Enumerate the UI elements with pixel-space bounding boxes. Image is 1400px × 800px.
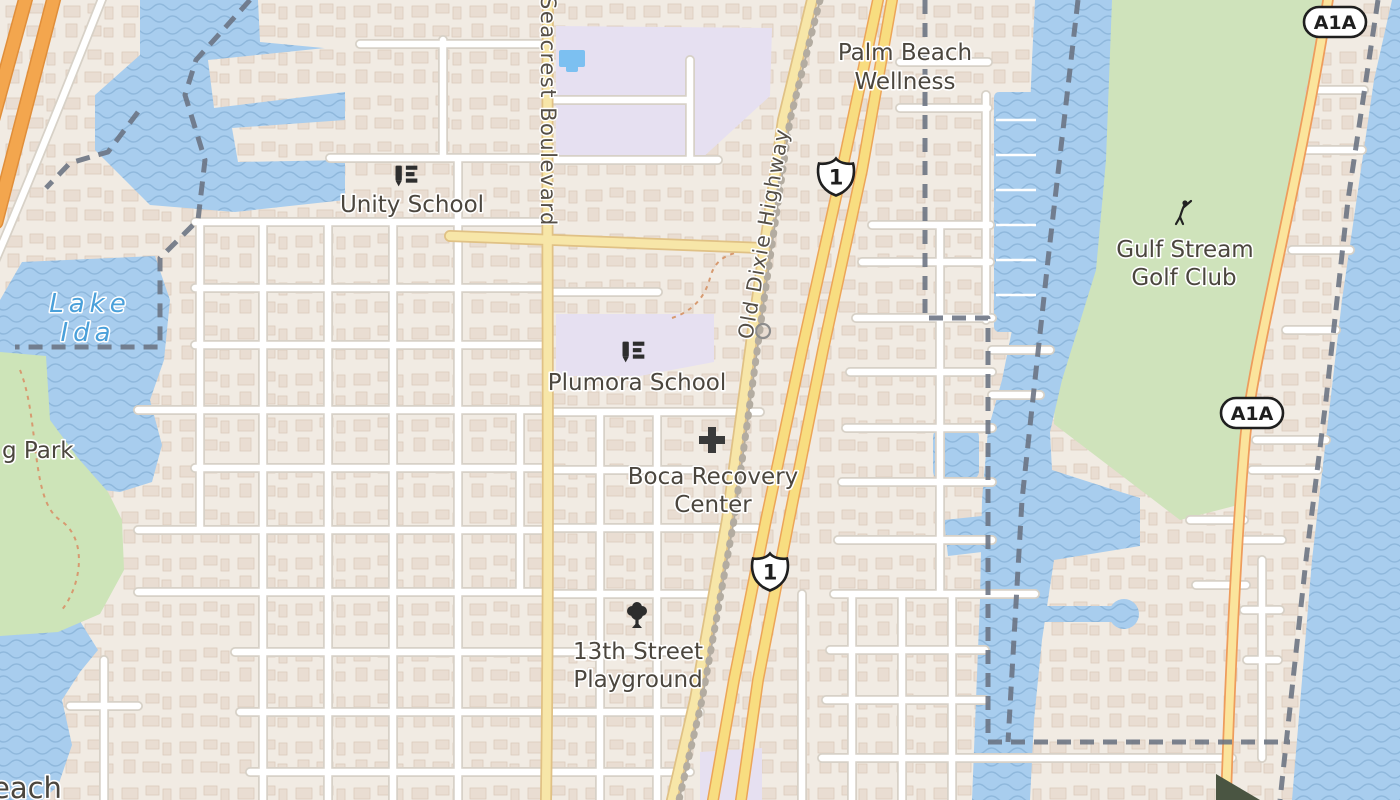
svg-text:Center: Center bbox=[674, 492, 752, 518]
svg-text:A1A: A1A bbox=[1231, 403, 1274, 425]
svg-text:1: 1 bbox=[763, 561, 778, 585]
svg-text:13th Street: 13th Street bbox=[573, 639, 703, 665]
svg-text:Wellness: Wellness bbox=[854, 69, 955, 95]
svg-text:Playground: Playground bbox=[573, 667, 702, 693]
svg-text:A1A: A1A bbox=[1314, 12, 1357, 34]
svg-text:Ida: Ida bbox=[60, 318, 115, 348]
svg-text:Lake: Lake bbox=[49, 289, 130, 319]
map-canvas[interactable]: Lake Ida g Park each Seacrest Boulevard … bbox=[0, 0, 1400, 800]
seacrest-boulevard-label: Seacrest Boulevard bbox=[536, 0, 560, 227]
a1a-shield: A1A bbox=[1221, 398, 1283, 428]
svg-text:Gulf Stream: Gulf Stream bbox=[1116, 237, 1253, 263]
svg-text:Golf Club: Golf Club bbox=[1131, 265, 1236, 291]
svg-text:1: 1 bbox=[829, 166, 844, 190]
map-svg[interactable]: Lake Ida g Park each Seacrest Boulevard … bbox=[0, 0, 1400, 800]
svg-text:Palm Beach: Palm Beach bbox=[838, 40, 972, 66]
park-label-partial[interactable]: g Park bbox=[2, 438, 74, 464]
svg-text:Boca Recovery: Boca Recovery bbox=[628, 464, 799, 490]
beach-label-partial[interactable]: each bbox=[0, 771, 62, 800]
svg-text:Unity School: Unity School bbox=[340, 192, 484, 218]
svg-text:Plumora School: Plumora School bbox=[548, 370, 727, 396]
a1a-shield: A1A bbox=[1304, 7, 1366, 37]
